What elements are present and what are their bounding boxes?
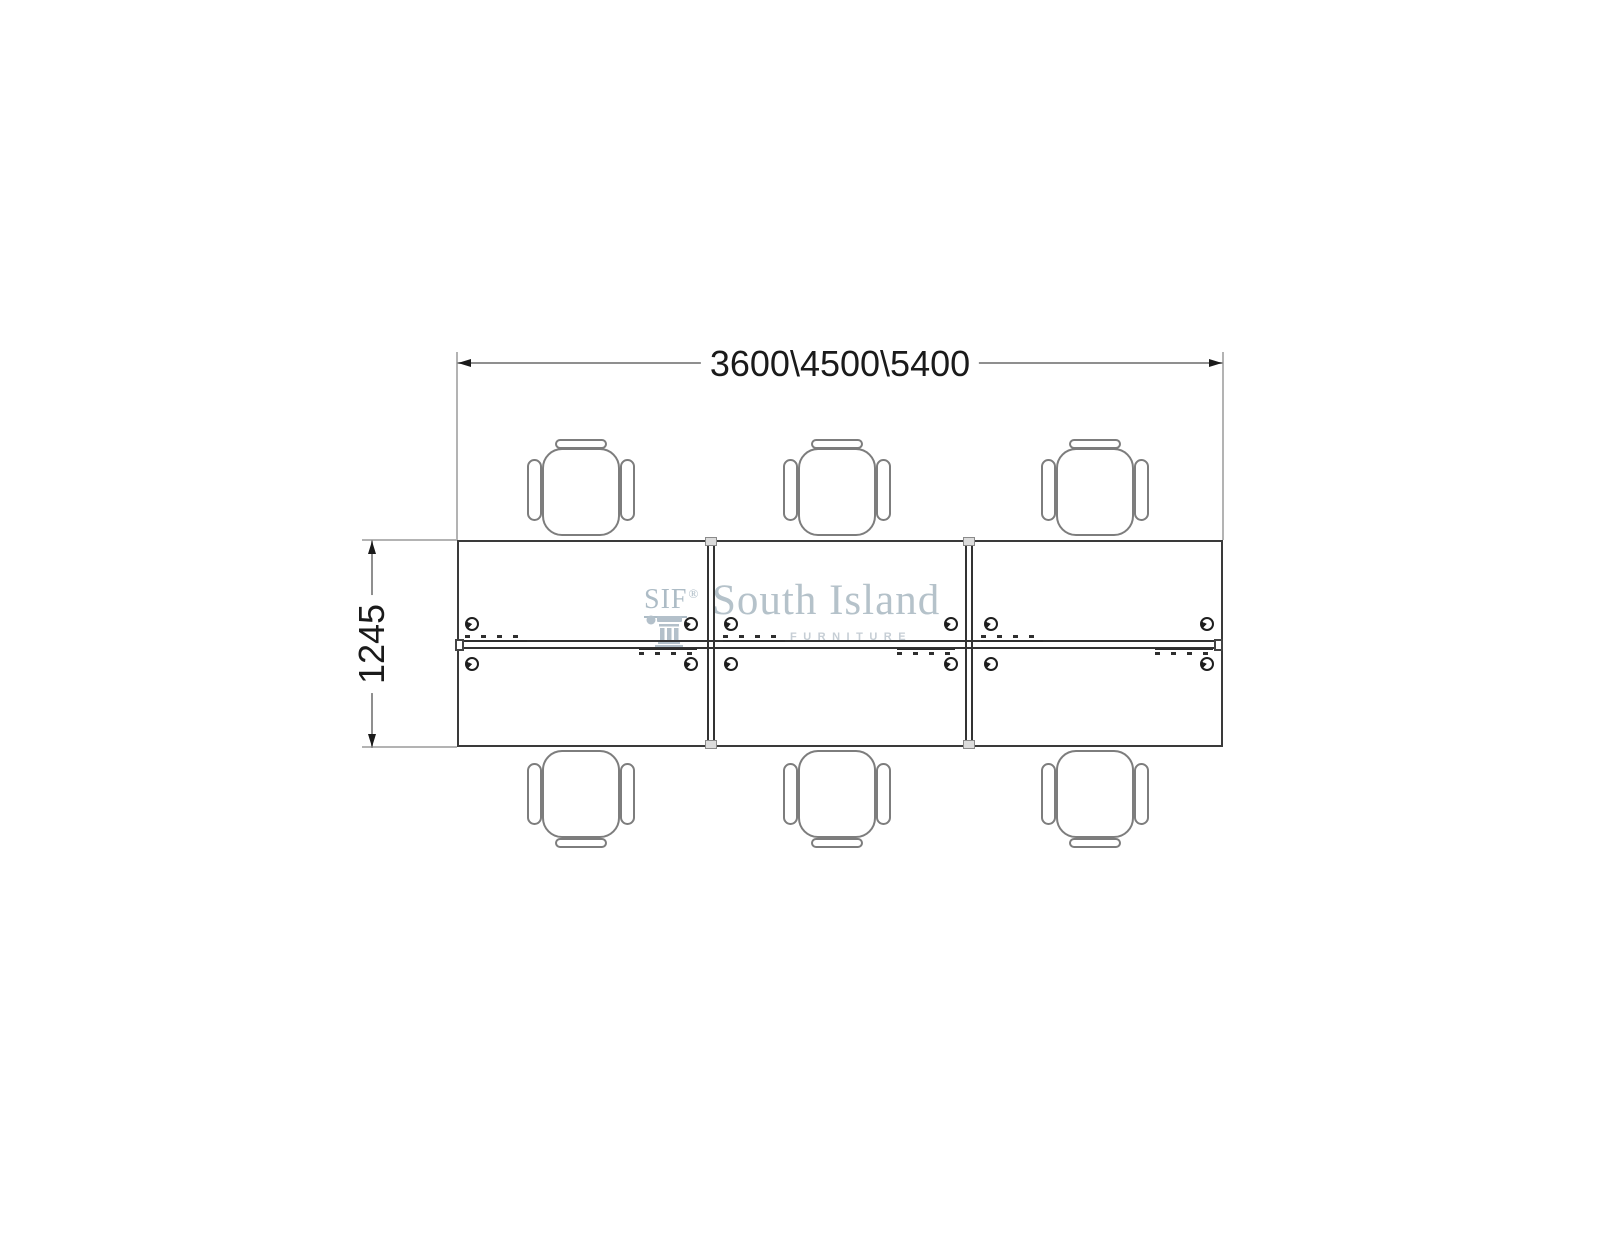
chair-seat [798,750,876,838]
cable-tray-ticks [723,635,785,642]
chair-backrest [555,838,607,848]
chair-armrest [620,763,635,825]
grommet [684,657,698,671]
center-screen-divider [457,640,1223,649]
partition-cap [705,537,717,546]
extension-line [456,352,458,540]
grommet [944,617,958,631]
extension-line [362,539,457,541]
chair-seat [798,448,876,536]
grommet [465,657,479,671]
chair-armrest [527,459,542,521]
chair [527,439,635,537]
cable-tray-ticks [465,635,527,642]
cable-tray-ticks [639,648,697,655]
chair [527,750,635,848]
bay-partition-1 [707,541,715,746]
grommet [1200,617,1214,631]
divider-end-cap-left [455,639,464,651]
partition-cap [963,740,975,749]
chair-armrest [1134,459,1149,521]
chair-backrest [811,838,863,848]
chair-backrest [1069,838,1121,848]
grommet [1200,657,1214,671]
grommet [944,657,958,671]
dimension-arrow-up [368,541,376,554]
chair [783,439,891,537]
dimension-arrow-right [1209,359,1222,367]
width-dimension-label: 3600\4500\5400 [701,343,979,385]
floor-plan-canvas: SIF® South Island FURNITURE [0,0,1600,1235]
chair-seat [1056,750,1134,838]
dimension-arrow-left [458,359,471,367]
grommet [684,617,698,631]
cable-tray-ticks [981,635,1043,642]
cable-tray-ticks [1155,648,1213,655]
chair-seat [542,750,620,838]
chair [783,750,891,848]
bay-partition-2 [965,541,973,746]
grommet [724,617,738,631]
chair-seat [1056,448,1134,536]
depth-dimension-label: 1245 [351,595,393,693]
grommet [984,657,998,671]
chair-armrest [783,459,798,521]
extension-line [362,746,457,748]
grommet [465,617,479,631]
grommet [984,617,998,631]
chair-seat [542,448,620,536]
chair [1041,439,1149,537]
partition-cap [963,537,975,546]
chair-armrest [527,763,542,825]
grommet [724,657,738,671]
chair-armrest [1134,763,1149,825]
chair-armrest [876,763,891,825]
chair-armrest [783,763,798,825]
divider-end-cap-right [1214,639,1223,651]
chair [1041,750,1149,848]
extension-line [1222,352,1224,540]
dimension-arrow-down [368,734,376,747]
chair-armrest [1041,763,1056,825]
chair-armrest [876,459,891,521]
partition-cap [705,740,717,749]
cable-tray-ticks [897,648,955,655]
chair-armrest [620,459,635,521]
chair-armrest [1041,459,1056,521]
